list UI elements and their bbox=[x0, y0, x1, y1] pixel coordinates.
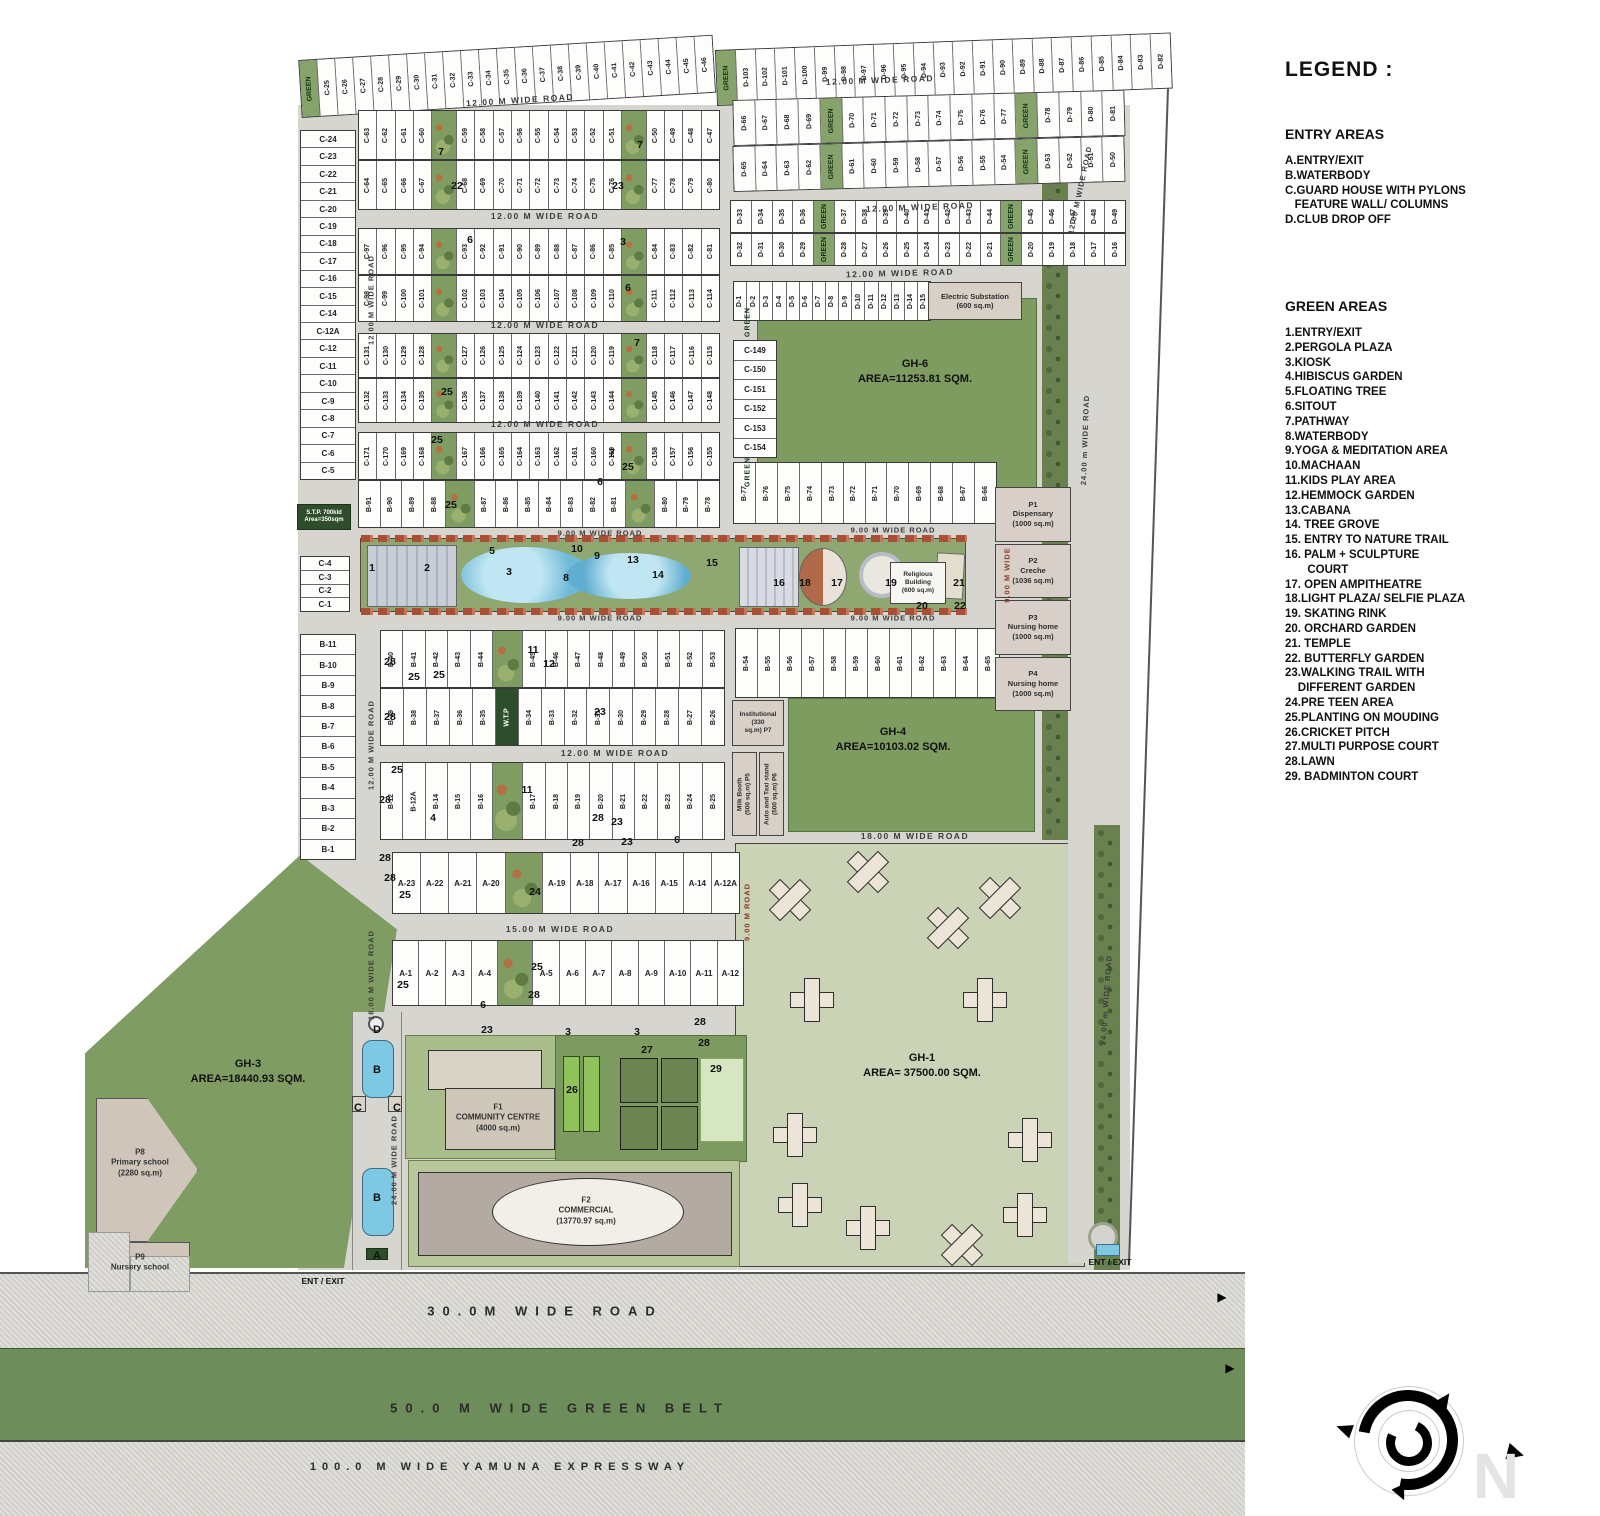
marker-roads: 24.00 m WIDE ROAD bbox=[1098, 955, 1113, 1046]
marker-num: 5 bbox=[489, 545, 495, 557]
legend-line: 4.HIBISCUS GARDEN bbox=[1285, 370, 1585, 385]
marker-areaS: P8 Primary school (2280 sq.m) bbox=[111, 1147, 169, 1178]
marker-num: 28 bbox=[384, 711, 396, 723]
legend-entry-areas-list: A.ENTRY/EXITB.WATERBODYC.GUARD HOUSE WIT… bbox=[1285, 154, 1585, 228]
marker-num: 3 bbox=[506, 566, 512, 578]
marker-num: 23 bbox=[612, 180, 624, 192]
marker-num: 28 bbox=[384, 872, 396, 884]
marker-letter: B bbox=[373, 1192, 381, 1204]
marker-road: 18.00 M WIDE ROAD bbox=[861, 831, 969, 841]
marker-road: 12.00 M WIDE ROAD bbox=[561, 748, 669, 758]
marker-road: 12.00 M WIDE ROAD bbox=[491, 419, 599, 429]
marker-road: 12.00 M WIDE ROAD bbox=[491, 320, 599, 330]
marker-arrow: ▶ bbox=[1504, 1437, 1527, 1466]
marker-num: 18 bbox=[799, 577, 811, 589]
marker-road: 12.00 M WIDE ROAD bbox=[826, 73, 934, 87]
legend-line: 7.PATHWAY bbox=[1285, 415, 1585, 430]
marker-letter: C bbox=[393, 1102, 401, 1114]
marker-area: GH-1 AREA= 37500.00 SQM. bbox=[863, 1051, 981, 1081]
legend-line: 6.SITOUT bbox=[1285, 400, 1585, 415]
legend-line: 1.ENTRY/EXIT bbox=[1285, 326, 1585, 341]
marker-letter: D bbox=[373, 1024, 381, 1036]
marker-num: 2 bbox=[424, 562, 430, 574]
marker-arrow2: ▶ bbox=[1217, 1290, 1226, 1304]
marker-num: 26 bbox=[566, 1084, 578, 1096]
marker-road: 15.00 M WIDE ROAD bbox=[506, 924, 614, 934]
marker-num: 25 bbox=[399, 889, 411, 901]
marker-areaS: F2 COMMERCIAL (13770.97 sq.m) bbox=[556, 1195, 616, 1226]
marker-roads: 12.00 M WIDE ROAD bbox=[367, 255, 376, 345]
marker-num: 25 bbox=[531, 961, 543, 973]
legend-green-areas-list: 1.ENTRY/EXIT2.PERGOLA PLAZA3.KIOSK4.HIBI… bbox=[1285, 326, 1585, 785]
marker-num: 6 bbox=[597, 476, 603, 488]
legend-line: 8.WATERBODY bbox=[1285, 430, 1585, 445]
legend-line: 14. TREE GROVE bbox=[1285, 518, 1585, 533]
marker-road: 12.00 M WIDE ROAD bbox=[491, 211, 599, 221]
marker-road: 12.00 M WIDE ROAD bbox=[846, 267, 954, 280]
marker-num: 27 bbox=[641, 1044, 653, 1056]
marker-ent: ENT / EXIT bbox=[302, 1276, 345, 1286]
marker-area: GH-3 AREA=18440.93 SQM. bbox=[191, 1057, 306, 1087]
marker-num: 10 bbox=[571, 543, 583, 555]
marker-num: 25 bbox=[445, 499, 457, 511]
marker-ent: ENT / EXIT bbox=[1089, 1257, 1132, 1267]
legend-line: 28.LAWN bbox=[1285, 755, 1585, 770]
marker-num: 23 bbox=[594, 706, 606, 718]
marker-roads: 9.00 M WIDE ROAD bbox=[851, 614, 936, 623]
legend-line: 26.CRICKET PITCH bbox=[1285, 726, 1585, 741]
marker-roads: 9.00 M WIDE ROAD bbox=[558, 614, 643, 623]
marker-num: 29 bbox=[710, 1063, 722, 1075]
site-plan-sheet: GREENC-25C-26C-27C-28C-29C-30C-31C-32C-3… bbox=[0, 0, 1600, 1516]
marker-num: 21 bbox=[953, 577, 965, 589]
marker-num: 24 bbox=[529, 886, 541, 898]
marker-num: 6 bbox=[480, 999, 486, 1011]
marker-num: 17 bbox=[831, 577, 843, 589]
marker-num: 25 bbox=[622, 461, 634, 473]
marker-num: 11 bbox=[521, 784, 532, 796]
marker-num: 28 bbox=[694, 1016, 706, 1028]
marker-num: 8 bbox=[563, 572, 569, 584]
marker-num: 9 bbox=[594, 550, 600, 562]
marker-letter: C bbox=[354, 1102, 362, 1114]
marker-areaS: P9 Nursery school bbox=[111, 1253, 169, 1274]
legend-green-areas-title: GREEN AREAS bbox=[1285, 298, 1585, 314]
marker-num: 28 bbox=[379, 794, 391, 806]
legend-line: 22. BUTTERFLY GARDEN bbox=[1285, 652, 1585, 667]
legend-line: 3.KIOSK bbox=[1285, 356, 1585, 371]
marker-num: 7 bbox=[438, 146, 444, 158]
marker-num: 16 bbox=[773, 577, 785, 589]
marker-num: 11 bbox=[527, 644, 538, 656]
marker-roads: 18.00 M WIDE ROAD bbox=[367, 930, 376, 1020]
marker-road: 12.00 M WIDE ROAD bbox=[466, 92, 575, 109]
marker-num: 14 bbox=[652, 569, 664, 581]
marker-roads: 12.00 M WIDE ROAD bbox=[367, 700, 376, 790]
legend-line: 2.PERGOLA PLAZA bbox=[1285, 341, 1585, 356]
legend-line: 10.MACHAAN bbox=[1285, 459, 1585, 474]
marker-wm: N bbox=[1473, 1439, 1519, 1513]
marker-road: 12.00 M WIDE ROAD bbox=[866, 200, 974, 214]
marker-num: 6 bbox=[674, 834, 680, 846]
marker-num: 28 bbox=[384, 656, 396, 668]
marker-num: 19 bbox=[885, 577, 897, 589]
legend-line: FEATURE WALL/ COLUMNS bbox=[1285, 198, 1585, 213]
legend-line: 17. OPEN AMPITHEATRE bbox=[1285, 578, 1585, 593]
marker-num: 23 bbox=[481, 1024, 493, 1036]
marker-roads: 9.00 M WIDE ROAD bbox=[851, 526, 936, 535]
marker-num: 7 bbox=[637, 139, 643, 151]
legend-line: C.GUARD HOUSE WITH PYLONS bbox=[1285, 184, 1585, 199]
marker-letter: B bbox=[373, 1064, 381, 1076]
legend-line: 5.FLOATING TREE bbox=[1285, 385, 1585, 400]
marker-num: 3 bbox=[620, 236, 626, 248]
legend-line: 21. TEMPLE bbox=[1285, 637, 1585, 652]
legend-line: COURT bbox=[1285, 563, 1585, 578]
marker-num: 4 bbox=[430, 812, 436, 824]
marker-num: 22 bbox=[451, 180, 463, 192]
marker-num: 28 bbox=[528, 989, 540, 1001]
legend-line: B.WATERBODY bbox=[1285, 169, 1585, 184]
legend-line: 11.KIDS PLAY AREA bbox=[1285, 474, 1585, 489]
legend-line: 9.YOGA & MEDITATION AREA bbox=[1285, 444, 1585, 459]
marker-num: 25 bbox=[408, 671, 420, 683]
marker-num: 22 bbox=[954, 600, 966, 612]
marker-greenv: GREEN bbox=[745, 307, 752, 337]
marker-roadr: 9.00 M ROAD bbox=[743, 883, 752, 941]
marker-num: 15 bbox=[706, 557, 718, 569]
marker-num: 3 bbox=[565, 1026, 571, 1038]
marker-num: 23 bbox=[611, 816, 623, 828]
marker-num: 7 bbox=[634, 337, 640, 349]
marker-num: 25 bbox=[391, 764, 403, 776]
legend-line: 27.MULTI PURPOSE COURT bbox=[1285, 740, 1585, 755]
marker-roads: 12.00 M WIDE ROAD bbox=[1066, 145, 1094, 235]
marker-num: 20 bbox=[916, 600, 928, 612]
marker-num: 25 bbox=[431, 434, 443, 446]
marker-num: 28 bbox=[698, 1037, 710, 1049]
marker-roadr: 9.00 M WIDE bbox=[1003, 547, 1012, 603]
legend-line: 29. BADMINTON COURT bbox=[1285, 770, 1585, 785]
marker-num: 28 bbox=[572, 837, 584, 849]
marker-greenv: GREEN bbox=[745, 457, 752, 487]
legend-panel: LEGEND : ENTRY AREAS A.ENTRY/EXITB.WATER… bbox=[1285, 58, 1585, 785]
marker-num: 6 bbox=[467, 234, 473, 246]
legend-line: 18.LIGHT PLAZA/ SELFIE PLAZA bbox=[1285, 592, 1585, 607]
marker-roads: 9.00 M WIDE ROAD bbox=[558, 529, 643, 538]
marker-letter: A bbox=[373, 1250, 381, 1262]
legend-line: DIFFERENT GARDEN bbox=[1285, 681, 1585, 696]
legend-title: LEGEND : bbox=[1285, 58, 1585, 82]
marker-num: 28 bbox=[592, 812, 604, 824]
legend-line: 12.HEMMOCK GARDEN bbox=[1285, 489, 1585, 504]
legend-line: 15. ENTRY TO NATURE TRAIL bbox=[1285, 533, 1585, 548]
legend-line: 13.CABANA bbox=[1285, 504, 1585, 519]
marker-num: 25 bbox=[441, 386, 453, 398]
marker-num: 25 bbox=[433, 669, 445, 681]
marker-num: 3 bbox=[634, 1026, 640, 1038]
marker-areaS: F1 COMMUNITY CENTRE (4000 sq.m) bbox=[456, 1102, 540, 1133]
marker-num: 23 bbox=[621, 836, 633, 848]
marker-band: 50.0 M WIDE GREEN BELT bbox=[390, 1401, 730, 1416]
legend-line: 20. ORCHARD GARDEN bbox=[1285, 622, 1585, 637]
marker-band2: 100.0 M WIDE YAMUNA EXPRESSWAY bbox=[310, 1461, 690, 1473]
marker-num: 13 bbox=[627, 554, 639, 566]
legend-line: 25.PLANTING ON MOUDING bbox=[1285, 711, 1585, 726]
legend-line: D.CLUB DROP OFF bbox=[1285, 213, 1585, 228]
legend-line: A.ENTRY/EXIT bbox=[1285, 154, 1585, 169]
marker-num: 1 bbox=[369, 562, 375, 574]
legend-line: 19. SKATING RINK bbox=[1285, 607, 1585, 622]
marker-num: 28 bbox=[379, 852, 391, 864]
marker-num: 12 bbox=[543, 658, 555, 670]
marker-roads: 24.00 m WIDE ROAD bbox=[1079, 395, 1091, 486]
marker-num: 7 bbox=[609, 447, 615, 459]
marker-num: 6 bbox=[625, 282, 631, 294]
legend-line: 24.PRE TEEN AREA bbox=[1285, 696, 1585, 711]
marker-band: 30.0M WIDE ROAD bbox=[427, 1304, 663, 1319]
legend-line: 23.WALKING TRAIL WITH bbox=[1285, 666, 1585, 681]
marker-area: GH-4 AREA=10103.02 SQM. bbox=[836, 725, 951, 755]
marker-roads: 24.00 M WIDE ROAD bbox=[390, 1115, 399, 1205]
legend-line: 16. PALM + SCULPTURE bbox=[1285, 548, 1585, 563]
marker-num: 25 bbox=[397, 979, 409, 991]
marker-area: GH-6 AREA=11253.81 SQM. bbox=[858, 357, 972, 387]
legend-entry-areas-title: ENTRY AREAS bbox=[1285, 126, 1585, 142]
marker-arrow2: ▶ bbox=[1225, 1361, 1234, 1375]
